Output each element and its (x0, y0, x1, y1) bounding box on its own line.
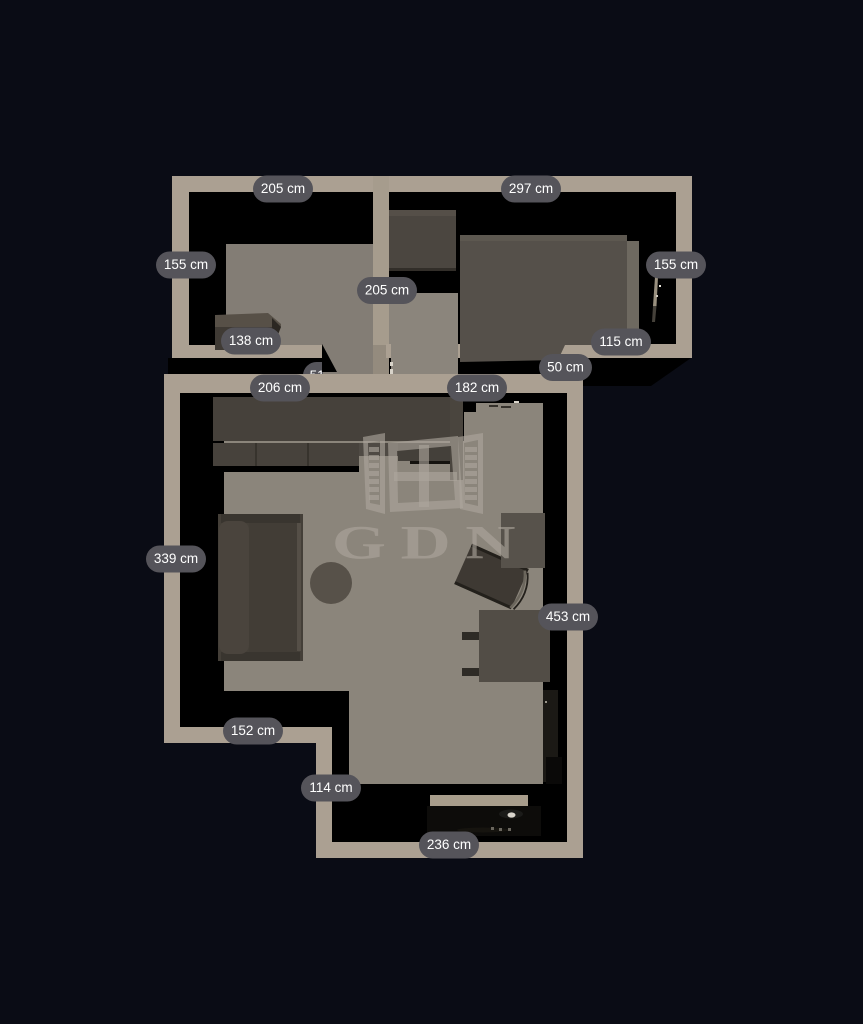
svg-text:114 cm: 114 cm (309, 780, 352, 795)
svg-text:236 cm: 236 cm (427, 837, 471, 852)
svg-text:205 cm: 205 cm (261, 181, 305, 196)
svg-text:50 cm: 50 cm (547, 360, 584, 375)
svg-text:152 cm: 152 cm (231, 723, 275, 738)
svg-text:GDN: GDN (332, 516, 530, 569)
svg-text:297 cm: 297 cm (509, 181, 553, 196)
svg-text:138 cm: 138 cm (229, 333, 273, 348)
svg-text:182 cm: 182 cm (455, 380, 499, 395)
svg-text:155 cm: 155 cm (164, 257, 208, 272)
svg-text:155 cm: 155 cm (654, 257, 698, 272)
svg-text:115 cm: 115 cm (599, 334, 642, 349)
svg-text:339 cm: 339 cm (154, 551, 198, 566)
svg-text:205 cm: 205 cm (365, 283, 409, 298)
svg-text:206 cm: 206 cm (258, 380, 302, 395)
svg-text:453 cm: 453 cm (546, 609, 590, 624)
